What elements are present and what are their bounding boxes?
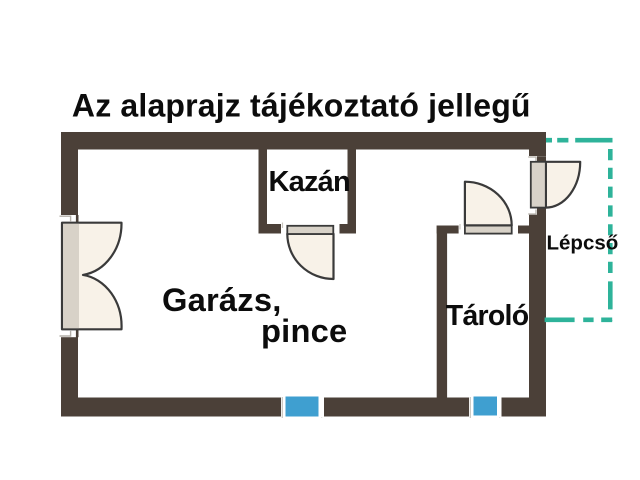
svg-text:Az alaprajz tájékoztató jelleg: Az alaprajz tájékoztató jellegű bbox=[72, 87, 531, 123]
svg-text:pince: pince bbox=[261, 312, 347, 349]
svg-text:Tároló: Tároló bbox=[446, 300, 529, 332]
svg-text:Kazán: Kazán bbox=[269, 166, 350, 198]
svg-text:Lépcső: Lépcső bbox=[547, 231, 619, 254]
